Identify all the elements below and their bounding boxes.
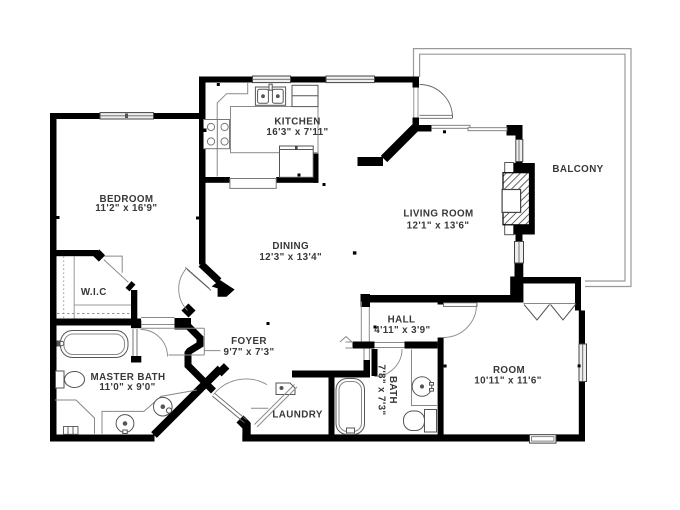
svg-text:7'8" x 7'3": 7'8" x 7'3" [376, 364, 387, 415]
svg-text:HALL: HALL [388, 314, 416, 325]
svg-text:12'1" x 13'6": 12'1" x 13'6" [407, 220, 470, 231]
svg-text:ROOM: ROOM [493, 365, 525, 376]
svg-text:10'11" x 11'6": 10'11" x 11'6" [474, 376, 542, 387]
svg-text:W.I.C: W.I.C [81, 287, 107, 298]
svg-text:11'0" x 9'0": 11'0" x 9'0" [99, 382, 155, 393]
svg-text:KITCHEN: KITCHEN [274, 117, 320, 128]
svg-text:16'3" x 7'11": 16'3" x 7'11" [266, 127, 328, 138]
svg-text:DINING: DINING [272, 241, 309, 252]
svg-text:11'2" x 16'9": 11'2" x 16'9" [95, 203, 157, 214]
svg-text:BATH: BATH [387, 376, 398, 404]
svg-text:12'3" x 13'4": 12'3" x 13'4" [259, 252, 322, 263]
svg-text:LIVING ROOM: LIVING ROOM [403, 209, 473, 220]
svg-text:4'11" x 3'9": 4'11" x 3'9" [374, 325, 430, 336]
svg-text:9'7" x 7'3": 9'7" x 7'3" [223, 347, 274, 358]
svg-text:LAUNDRY: LAUNDRY [272, 410, 322, 421]
svg-text:BALCONY: BALCONY [552, 164, 603, 175]
svg-text:FOYER: FOYER [231, 336, 267, 347]
